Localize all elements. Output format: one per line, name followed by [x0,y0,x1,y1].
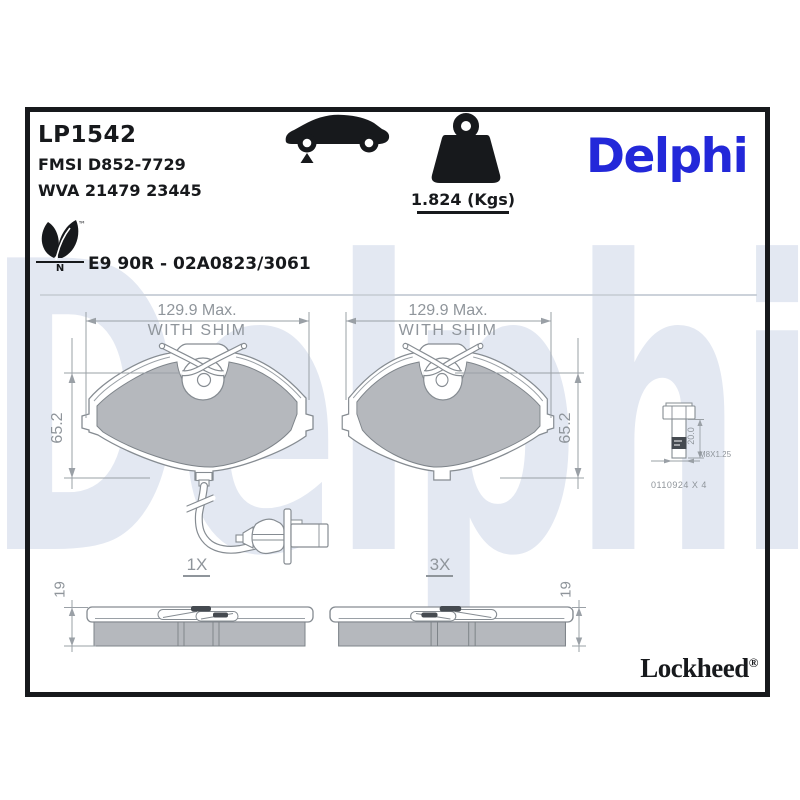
homologation-number: E9 90R - 02A0823/3061 [88,254,311,274]
quantity-underline-left [183,575,210,577]
quantity-label-sensor-pad: 1X [180,555,214,575]
width-dimension-right: 129.9 Max. [387,302,509,320]
quantity-underline-right [426,575,453,577]
thickness-dimension-left: 19 [52,574,69,606]
lockheed-logo-text: Lockheed [640,653,749,683]
lockheed-logo: Lockheed® [500,653,758,684]
wear-sensor-assembly [187,473,328,565]
height-dimension-left: 65.2 [49,408,67,448]
brake-pad-front-view-with-sensor [82,343,313,480]
brake-pad-side-view-left [87,606,313,646]
height-dimension-right: 65.2 [557,408,575,448]
wva-reference: WVA 21479 23445 [38,181,202,200]
bolt-kit-reference: 0110924 X 4 [651,480,707,490]
weight-underline [417,211,509,214]
brake-pad-side-view-right [330,606,573,646]
delphi-logo: Delphi [586,129,747,184]
front-axle-marker-icon [301,153,314,163]
bolt-thread-spec: M8X1.25 [699,450,731,459]
leaf-n-label: N [36,263,84,274]
width-note-left: WITH SHIM [136,322,258,340]
car-icon [282,110,394,166]
brake-pad-front-view-plain [342,343,554,480]
thread-lock-patch [672,437,687,449]
registered-mark: ® [749,655,758,670]
leaf-tm-mark: ™ [78,220,86,229]
weight-icon [426,113,506,191]
quantity-label-plain-pads: 3X [423,555,457,575]
width-note-right: WITH SHIM [387,322,509,340]
weight-value: 1.824 (Kgs) [410,190,516,209]
thickness-dimension-right: 19 [558,574,575,606]
width-dimension-left: 129.9 Max. [136,302,258,320]
bolt-length-dimension: 20.0 [686,422,696,450]
fmsi-reference: FMSI D852-7729 [38,155,186,174]
part-number: LP1542 [38,122,137,148]
datasheet-page: Delphi LP1542 FMSI D852-7729 WVA 21479 2… [0,0,800,800]
